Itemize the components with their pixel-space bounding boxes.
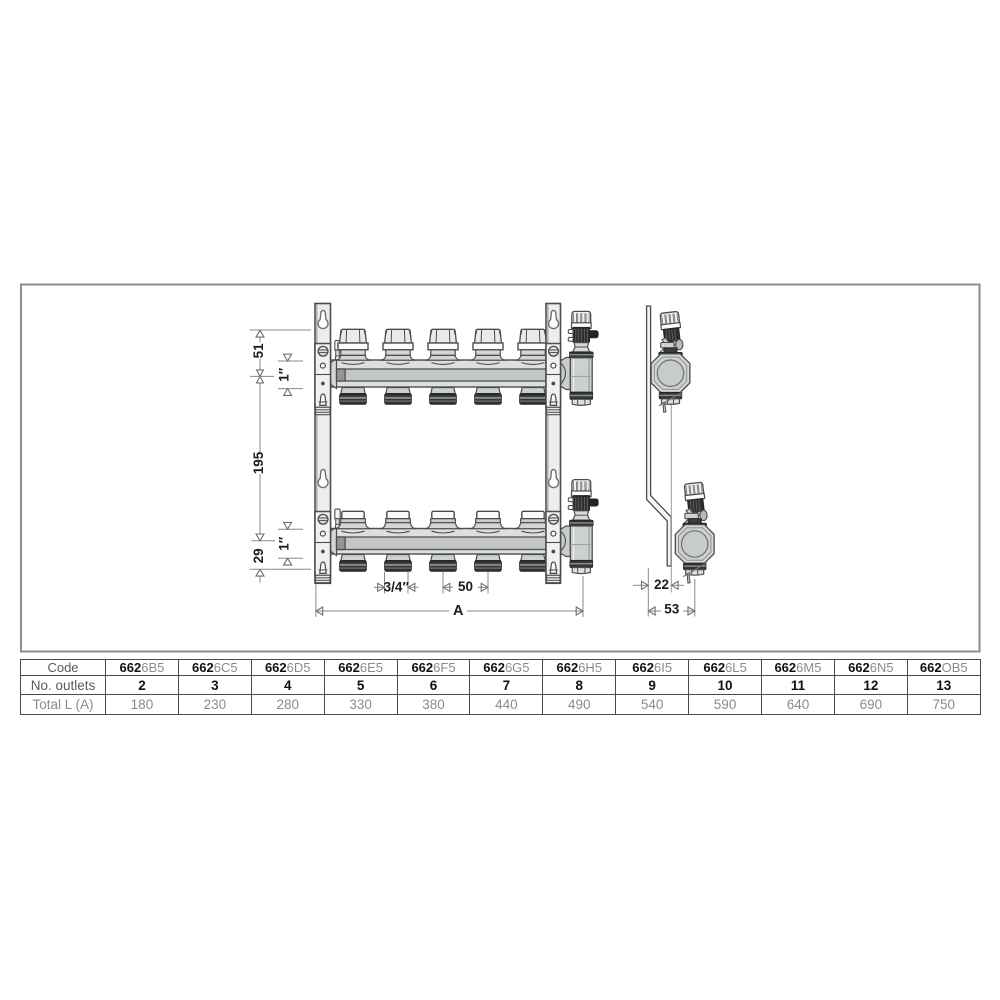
svg-text:50: 50 xyxy=(458,579,473,594)
svg-text:1″: 1″ xyxy=(276,367,291,382)
svg-text:195: 195 xyxy=(251,451,266,474)
svg-text:29: 29 xyxy=(251,548,266,563)
svg-text:A: A xyxy=(453,603,464,619)
svg-text:22: 22 xyxy=(654,577,669,592)
svg-text:53: 53 xyxy=(664,602,680,617)
svg-text:1″: 1″ xyxy=(276,536,291,551)
svg-text:51: 51 xyxy=(251,343,266,359)
svg-text:3/4″: 3/4″ xyxy=(384,579,410,594)
